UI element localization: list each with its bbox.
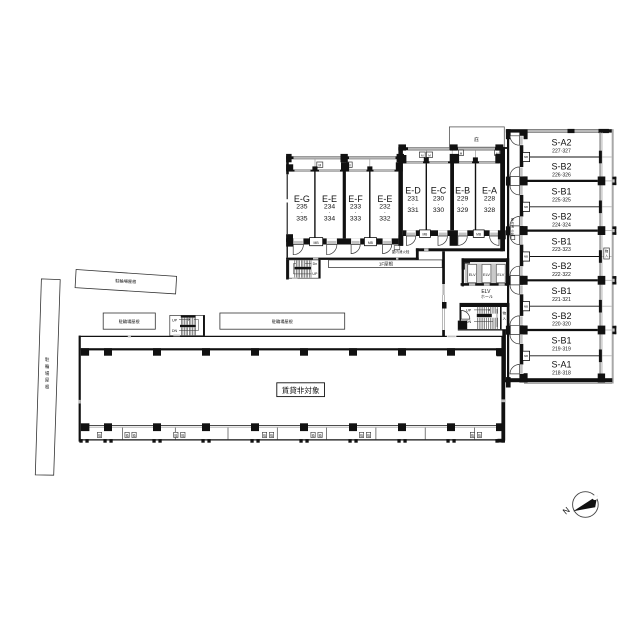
svg-text:換: 換 xyxy=(181,433,184,438)
svg-text:219·319: 219·319 xyxy=(552,347,571,353)
svg-text:S-B2: S-B2 xyxy=(551,211,571,221)
svg-text:MB: MB xyxy=(368,241,374,245)
svg-text:換: 換 xyxy=(133,433,136,438)
svg-text:225·325: 225·325 xyxy=(552,198,571,204)
svg-text:227·327: 227·327 xyxy=(552,148,571,154)
svg-text:E-E: E-E xyxy=(377,194,392,204)
svg-text:E-E: E-E xyxy=(322,194,337,204)
svg-text:Dn: Dn xyxy=(313,262,318,266)
svg-text:E-B: E-B xyxy=(455,186,470,196)
svg-text:輪: 輪 xyxy=(45,363,50,370)
svg-text:換: 換 xyxy=(478,433,481,438)
svg-text:E-G: E-G xyxy=(294,194,310,204)
svg-text:M: M xyxy=(318,163,321,167)
svg-text:ELV: ELV xyxy=(497,273,504,277)
svg-text:S-B1: S-B1 xyxy=(551,187,571,197)
svg-text:331: 331 xyxy=(407,207,419,214)
svg-text:E-F: E-F xyxy=(348,194,363,204)
svg-text:駐: 駐 xyxy=(45,356,50,363)
svg-text:換: 換 xyxy=(471,433,474,438)
svg-text:S-A1: S-A1 xyxy=(551,360,571,370)
svg-text:換: 換 xyxy=(263,433,266,438)
svg-text:226·326: 226·326 xyxy=(552,173,571,179)
svg-text:335: 335 xyxy=(296,215,308,222)
svg-text:222·322: 222·322 xyxy=(552,272,571,278)
svg-text:332: 332 xyxy=(379,215,391,222)
svg-text:DN: DN xyxy=(172,329,178,333)
svg-text:E-D: E-D xyxy=(405,186,421,196)
svg-text:MB: MB xyxy=(524,205,528,209)
svg-text:場: 場 xyxy=(45,370,50,377)
svg-text:329: 329 xyxy=(457,207,469,214)
svg-text:庇: 庇 xyxy=(474,136,479,143)
svg-text:換: 換 xyxy=(98,433,101,438)
svg-text:ELV: ELV xyxy=(483,273,490,277)
svg-text:MB: MB xyxy=(524,155,528,159)
svg-text:218·318: 218·318 xyxy=(552,371,571,377)
svg-text:MB: MB xyxy=(476,233,481,237)
svg-text:換: 換 xyxy=(270,433,273,438)
svg-text:S-B2: S-B2 xyxy=(551,162,571,172)
svg-text:333: 333 xyxy=(350,215,362,222)
svg-text:E-A: E-A xyxy=(482,186,497,196)
svg-text:屋内消火栓: 屋内消火栓 xyxy=(392,249,410,254)
svg-text:駐輪場屋根: 駐輪場屋根 xyxy=(119,318,141,325)
svg-text:MB: MB xyxy=(314,241,320,245)
svg-text:334: 334 xyxy=(324,215,336,222)
svg-text:S-B1: S-B1 xyxy=(551,286,571,296)
svg-text:MB: MB xyxy=(524,354,528,358)
svg-text:S-B1: S-B1 xyxy=(551,336,571,346)
svg-text:MB: MB xyxy=(524,304,528,308)
svg-text:栓: 栓 xyxy=(511,231,514,236)
svg-text:駐輪場屋根: 駐輪場屋根 xyxy=(272,318,294,325)
svg-text:賃貸非対象: 賃貸非対象 xyxy=(282,385,320,395)
svg-text:UP: UP xyxy=(312,272,318,276)
svg-text:換: 換 xyxy=(312,433,315,438)
svg-text:換: 換 xyxy=(360,433,363,438)
svg-text:S-A2: S-A2 xyxy=(551,138,571,148)
svg-text:330: 330 xyxy=(433,207,445,214)
svg-text:223·323: 223·323 xyxy=(552,247,571,253)
svg-text:221·321: 221·321 xyxy=(552,297,571,303)
svg-text:DN: DN xyxy=(466,320,472,324)
svg-text:UP: UP xyxy=(172,318,178,322)
svg-text:224·324: 224·324 xyxy=(552,222,571,228)
svg-text:S-B2: S-B2 xyxy=(551,311,571,321)
svg-text:MB: MB xyxy=(423,233,428,237)
svg-text:根: 根 xyxy=(45,384,50,391)
svg-text:MB: MB xyxy=(524,255,528,259)
svg-text:ELV: ELV xyxy=(469,273,476,277)
svg-text:換: 換 xyxy=(126,433,129,438)
svg-text:換: 換 xyxy=(367,433,370,438)
svg-text:ホール: ホール xyxy=(481,294,493,299)
svg-text:E-C: E-C xyxy=(431,186,447,196)
svg-text:328: 328 xyxy=(484,207,496,214)
svg-text:S-B1: S-B1 xyxy=(551,236,571,246)
svg-text:UP: UP xyxy=(466,309,472,313)
svg-text:換: 換 xyxy=(174,433,177,438)
svg-text:220·320: 220·320 xyxy=(552,322,571,328)
svg-text:換: 換 xyxy=(319,433,322,438)
svg-text:S-B2: S-B2 xyxy=(551,261,571,271)
svg-text:1F屋根: 1F屋根 xyxy=(379,261,394,268)
